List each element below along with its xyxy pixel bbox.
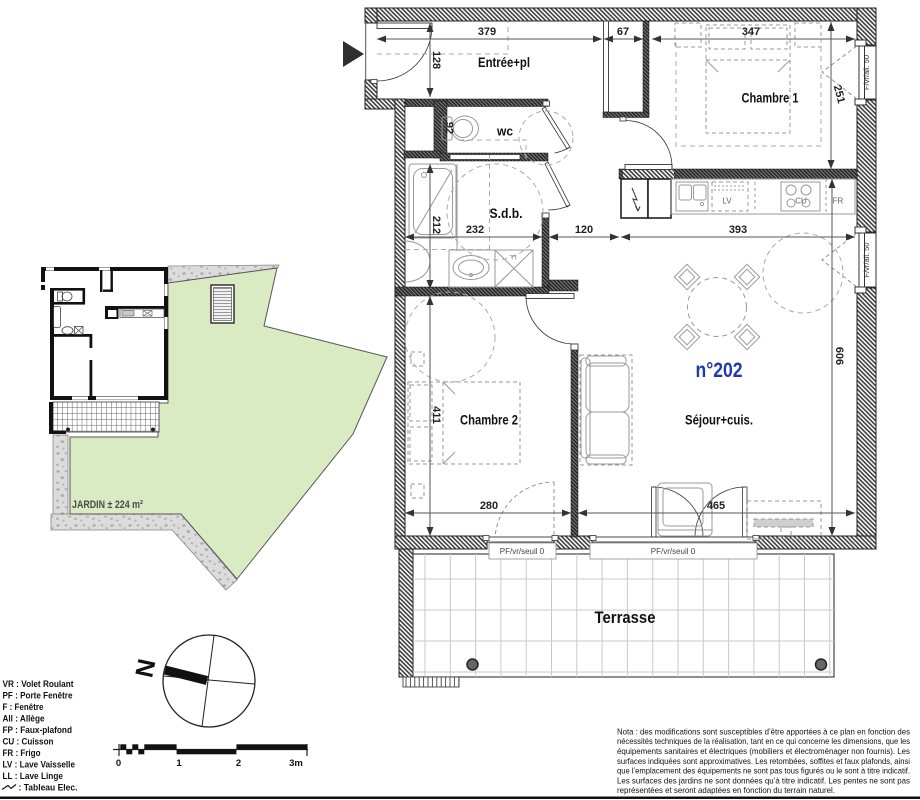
- svg-text:que l’emplacement des équipeme: que l’emplacement des équipements ne son…: [617, 766, 910, 776]
- svg-text:: Tableau Elec.: : Tableau Elec.: [19, 783, 78, 794]
- svg-text:Terrasse: Terrasse: [595, 609, 656, 627]
- svg-text:232: 232: [466, 224, 484, 236]
- svg-text:128: 128: [430, 51, 442, 69]
- svg-text:surfaces indiquées sont approx: surfaces indiquées sont approximatives. …: [617, 756, 910, 766]
- svg-text:FP : Faux-plafond: FP : Faux-plafond: [3, 725, 73, 736]
- svg-text:FR: FR: [833, 197, 844, 206]
- svg-text:280: 280: [480, 500, 498, 512]
- svg-text:3m: 3m: [289, 758, 303, 769]
- svg-text:Chambre 1: Chambre 1: [742, 91, 799, 106]
- svg-text:67: 67: [617, 26, 629, 38]
- svg-text:0: 0: [116, 758, 121, 769]
- svg-text:LL : Lave Linge: LL : Lave Linge: [3, 771, 64, 782]
- svg-text:CU : Cuisson: CU : Cuisson: [3, 737, 54, 748]
- svg-text:Les surfaces des jardins ne so: Les surfaces des jardins ne sont données…: [617, 775, 910, 785]
- svg-text:Entrée+pl: Entrée+pl: [478, 55, 530, 70]
- svg-text:VR : Volet Roulant: VR : Volet Roulant: [3, 679, 75, 690]
- svg-text:S.d.b.: S.d.b.: [490, 205, 523, 221]
- svg-text:n°202: n°202: [696, 359, 743, 382]
- svg-text:LV: LV: [722, 197, 732, 206]
- svg-text:411: 411: [430, 406, 442, 424]
- svg-text:PF/vr/seuil 0: PF/vr/seuil 0: [651, 547, 696, 556]
- svg-text:CU: CU: [795, 197, 807, 206]
- svg-text:équipements sanitaires et élec: équipements sanitaires et électriques (m…: [617, 746, 910, 756]
- svg-text:Chambre 2: Chambre 2: [460, 413, 518, 428]
- svg-text:2: 2: [236, 758, 241, 769]
- svg-text:F : Fenêtre: F : Fenêtre: [3, 702, 44, 713]
- svg-text:PF/vr/seuil 0: PF/vr/seuil 0: [500, 547, 545, 556]
- svg-text:représentées et seront adaptée: représentées et seront adaptées en fonct…: [617, 785, 835, 795]
- svg-text:FR : Frigo: FR : Frigo: [3, 748, 41, 759]
- svg-text:All : Allège: All : Allège: [3, 714, 45, 725]
- svg-text:92: 92: [443, 122, 455, 134]
- svg-text:F/vr/all. 50: F/vr/all. 50: [862, 242, 871, 277]
- svg-text:nécessités techniques de la ré: nécessités techniques de la réalisation,…: [617, 736, 910, 746]
- svg-text:212: 212: [430, 216, 442, 234]
- svg-text:LV : Lave Vaisselle: LV : Lave Vaisselle: [3, 760, 76, 771]
- svg-text:465: 465: [707, 500, 725, 512]
- svg-text:PF : Porte Fenêtre: PF : Porte Fenêtre: [3, 691, 73, 702]
- svg-text:120: 120: [575, 224, 593, 236]
- svg-text:379: 379: [478, 26, 496, 38]
- svg-text:wc: wc: [496, 125, 513, 139]
- svg-text:347: 347: [742, 26, 760, 38]
- svg-text:Nota : des modifications sont: Nota : des modifications sont susceptibl…: [617, 726, 910, 736]
- svg-text:393: 393: [729, 224, 747, 236]
- svg-text:1: 1: [176, 758, 182, 769]
- svg-text:JARDIN ± 224 m²: JARDIN ± 224 m²: [72, 499, 143, 511]
- svg-text:F/vr/all. 50: F/vr/all. 50: [862, 55, 871, 90]
- svg-text:606: 606: [833, 347, 845, 365]
- svg-text:Séjour+cuis.: Séjour+cuis.: [685, 413, 753, 428]
